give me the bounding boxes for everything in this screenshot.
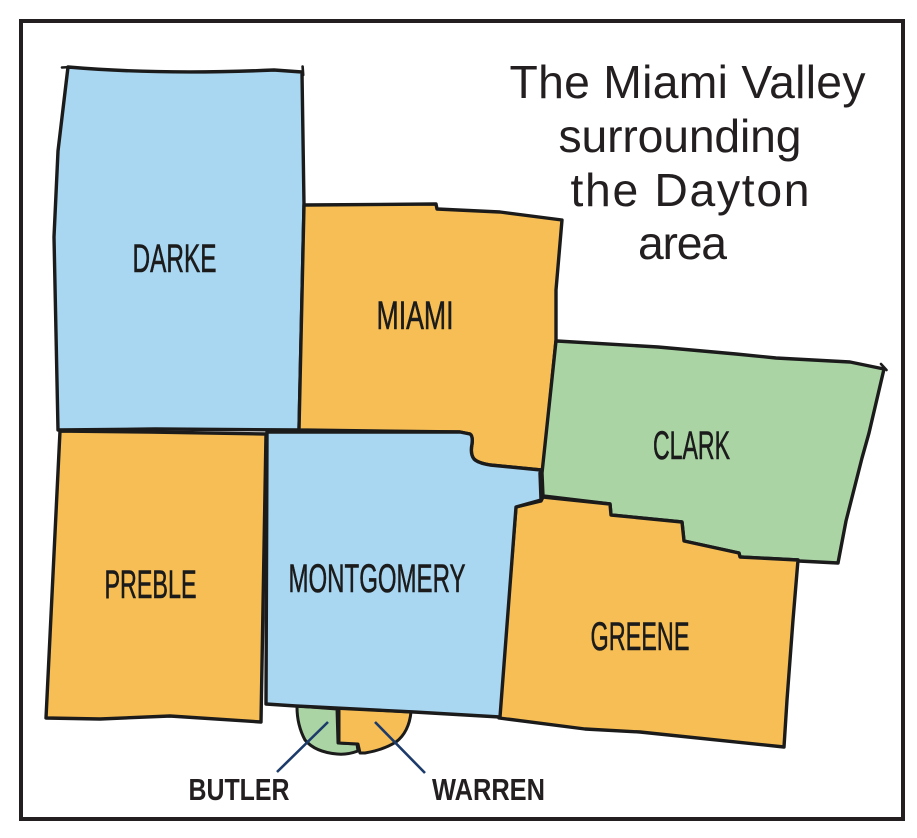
svg-text:CLARK: CLARK [653,424,730,468]
svg-text:The Miami Valley: The Miami Valley [510,56,867,108]
svg-text:MONTGOMERY: MONTGOMERY [289,557,466,601]
svg-text:GREENE: GREENE [591,615,690,659]
svg-text:DARKE: DARKE [133,237,217,281]
svg-text:PREBLE: PREBLE [105,563,197,607]
svg-text:BUTLER: BUTLER [189,772,290,807]
svg-text:area: area [638,217,727,269]
svg-text:surrounding: surrounding [559,110,802,162]
svg-text:MIAMI: MIAMI [377,294,454,338]
svg-text:WARREN: WARREN [432,772,545,807]
svg-text:the Dayton: the Dayton [571,164,810,216]
